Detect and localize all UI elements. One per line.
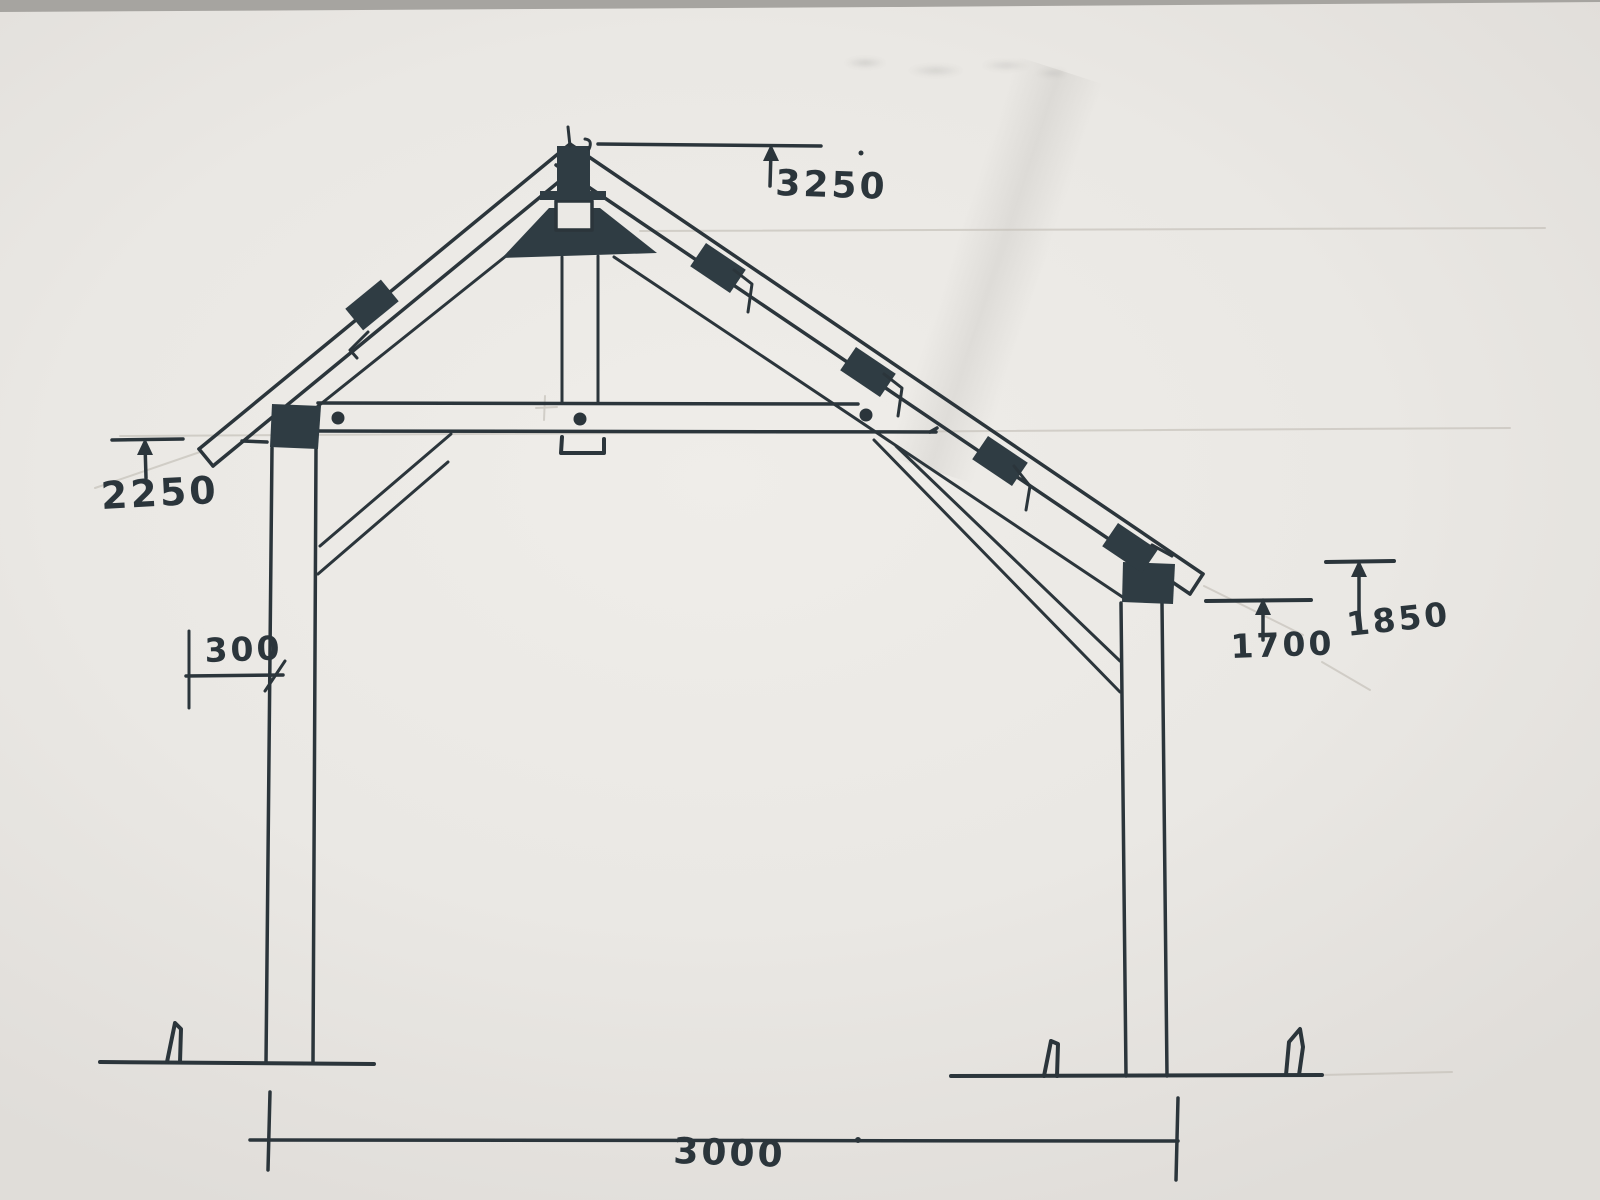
ground-lines (100, 1062, 1322, 1076)
left-knee-brace (318, 434, 451, 574)
king-post (562, 256, 598, 403)
dim-label-post-inset: 300 (204, 631, 283, 667)
left-post-head-block (270, 404, 321, 449)
dim-label-left-eave: 2250 (100, 471, 220, 515)
stray-ink-dot (859, 151, 864, 156)
dim-label-apex-height: 3250 (775, 166, 888, 206)
right-post (1121, 603, 1167, 1076)
apex-tick (568, 127, 570, 146)
dim-label-right-eave: 1850 (1345, 597, 1452, 641)
right-knee-brace (874, 440, 1120, 692)
ground-anchor-marks (167, 1023, 1303, 1076)
left-post (266, 448, 316, 1063)
under-beam-bracket (561, 437, 604, 453)
right-post-head-block (1122, 562, 1175, 604)
apex-notch (556, 201, 592, 230)
dim-label-span: 3000 (673, 1134, 786, 1174)
dim-label-right-post: 1700 (1230, 626, 1335, 663)
tie-beam (318, 403, 937, 432)
purlin-brackets (350, 270, 1172, 556)
photographed-sketch-page: { "sketch": { "description": "hand-drawn… (0, 0, 1600, 1200)
king-post-head-block (557, 146, 590, 193)
bolts (332, 409, 873, 426)
